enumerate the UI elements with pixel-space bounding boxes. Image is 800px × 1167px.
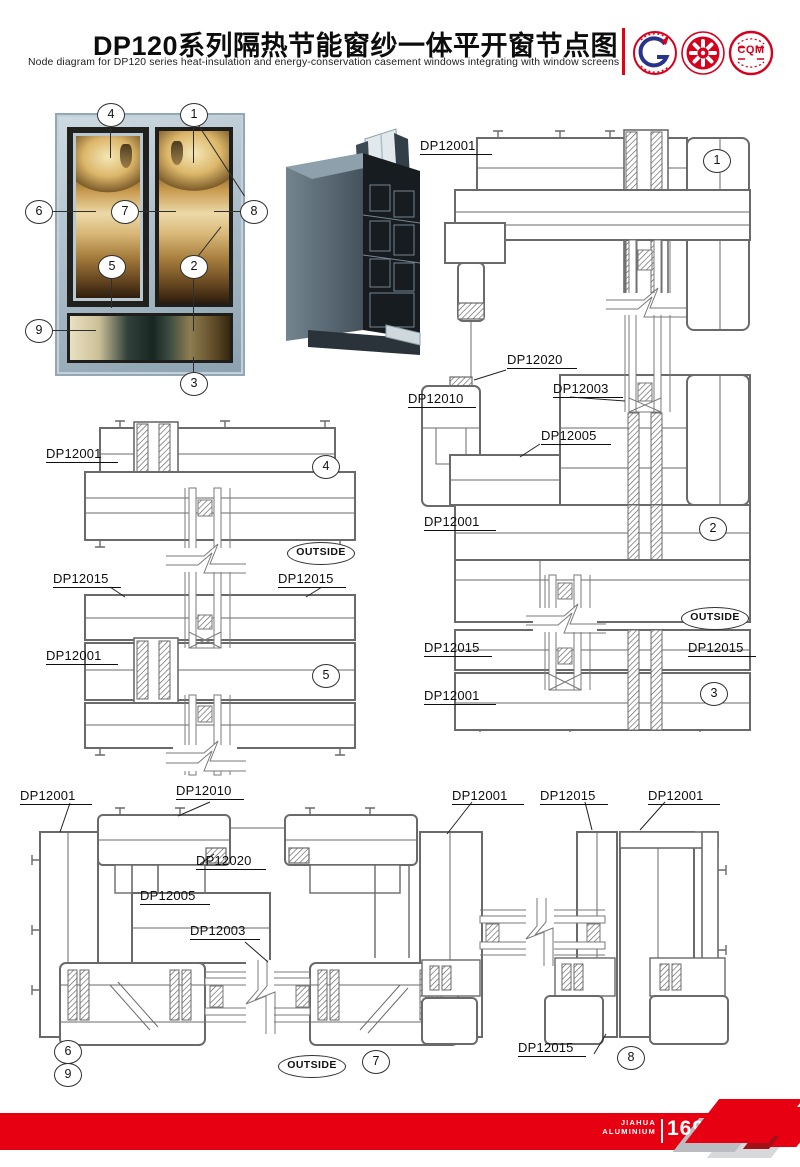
chandelier-silhouette [171,141,183,165]
profile-label-dp12015: DP12015 [518,1040,586,1057]
profile-label-dp12020: DP12020 [196,853,266,870]
photo-callout-1: 1 [180,103,208,127]
profile-label-dp12010: DP12010 [408,391,476,408]
profile-label-dp12005: DP12005 [541,428,611,445]
profile-label-dp12015: DP12015 [424,640,492,657]
cqm-logo-text: CQM [728,44,774,56]
profile-label-dp12001: DP12001 [648,788,720,805]
photo-callout-8: 8 [240,200,268,224]
callout-leader [48,330,96,331]
section-circle-4: 4 [312,455,340,479]
profile-label-dp12015: DP12015 [540,788,608,805]
callout-leader [110,125,111,158]
glass-bottom [70,316,230,360]
footer-brand: JIAHUA ALUMINIUM [560,1119,656,1136]
photo-callout-6: 6 [25,200,53,224]
profile-label-dp12001: DP12001 [46,648,118,665]
section-circle-8: 8 [617,1046,645,1070]
callout-leader [214,211,243,212]
chandelier-silhouette [120,144,132,168]
footer-brand-bottom: ALUMINIUM [560,1128,656,1137]
footer-divider [661,1119,663,1143]
photo-callout-9: 9 [25,319,53,343]
section-circle-2: 2 [699,517,727,541]
callout-leader [193,276,194,331]
callout-leader [193,357,194,373]
bottom-fixed-pane [67,313,233,363]
callout-leader [134,211,176,212]
section-drawing-bottom [10,790,800,1095]
profile-label-dp12001: DP12001 [20,788,92,805]
profile-label-dp12003: DP12003 [190,923,260,940]
header-divider [622,28,625,75]
photo-callout-3: 3 [180,372,208,396]
profile-label-dp12001: DP12001 [424,688,496,705]
outside-label: OUTSIDE [681,607,749,630]
certification-logo-icon [632,30,678,76]
section-circle-5: 5 [312,664,340,688]
glass-unit [205,960,310,1034]
page-subtitle: Node diagram for DP120 series heat-insul… [28,57,620,68]
callout-leader [111,276,112,308]
profile-label-dp12001: DP12001 [420,138,492,155]
profile-label-dp12001: DP12001 [424,514,496,531]
callout-leader [193,125,194,163]
profile-label-dp12015: DP12015 [53,571,121,588]
section-circle-7: 7 [362,1050,390,1074]
quality-gear-logo-icon [680,30,726,76]
outside-label: OUTSIDE [287,542,355,565]
section-circle-6: 6 [54,1040,82,1064]
outside-label: OUTSIDE [278,1055,346,1078]
section-circle-1: 1 [703,149,731,173]
profile-3d-render [268,125,433,360]
callout-leader [48,211,96,212]
profile-label-dp12015: DP12015 [688,640,756,657]
profile-label-dp12001: DP12001 [46,446,118,463]
profile-label-dp12015: DP12015 [278,571,346,588]
section-circle-3: 3 [700,682,728,706]
photo-callout-5: 5 [98,255,126,279]
catalog-page: DP120系列隔热节能窗纱一体平开窗节点图 Node diagram for D… [0,0,800,1167]
profile-label-dp12020: DP12020 [507,352,577,369]
fixed-pane [155,127,233,307]
profile-label-dp12010: DP12010 [176,783,244,800]
profile-label-dp12003: DP12003 [553,381,623,398]
photo-callout-4: 4 [97,103,125,127]
profile-label-dp12005: DP12005 [140,888,210,905]
section-drawing-midleft [40,418,400,778]
section-circle-9: 9 [54,1063,82,1087]
photo-callout-7: 7 [111,200,139,224]
photo-callout-2: 2 [180,255,208,279]
profile-label-dp12001: DP12001 [452,788,524,805]
